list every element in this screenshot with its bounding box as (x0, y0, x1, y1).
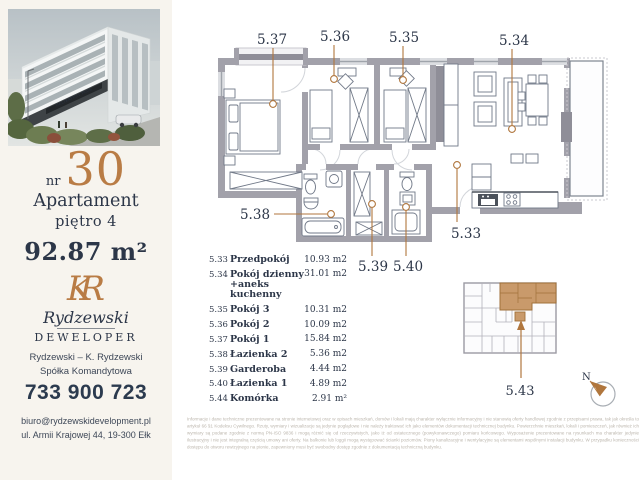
sink (304, 198, 318, 202)
label-534: 5.34 (499, 33, 529, 49)
toilet-tank (304, 174, 317, 179)
table-row: 5.36 Pokój 2 10.09 m2 (209, 320, 347, 330)
logo-subtitle: DEWELOPER (0, 331, 172, 344)
armchair (474, 72, 496, 96)
contact-block: biuro@rydzewskidevelopment.pl ul. Armii … (0, 415, 172, 442)
unit-type: Apartament (0, 193, 172, 211)
wardrobe-535 (408, 88, 426, 142)
table-row: 5.34 Pokój dzienny+aneks kuchenny 31.01 … (209, 270, 347, 301)
loggia (234, 48, 308, 65)
room-number: 5.40 (209, 379, 230, 389)
nightstand (224, 156, 235, 165)
unit-number: 30 (66, 142, 127, 196)
room-name: Łazienka 1 (230, 379, 310, 389)
kitchen (472, 154, 558, 208)
label-543: 5.43 (506, 384, 535, 399)
room-name-line: Garderoba (230, 365, 310, 375)
tall-cabinet-534 (436, 64, 458, 146)
unit-number-prefix: nr (46, 174, 61, 189)
table-row: 5.35 Pokój 3 10.31 m2 (209, 305, 347, 315)
room-name-line: Przedpokój (230, 255, 304, 265)
room-name-line: Komórka (230, 394, 312, 404)
logo-name: Rydzewski (0, 308, 172, 327)
room-name: Komórka (230, 394, 312, 404)
legal-disclaimer-text: Informacje i dane techniczne prezentowan… (187, 416, 639, 451)
room-number: 5.34 (209, 270, 230, 280)
floor-overview-plan: 5.43 (462, 282, 562, 404)
table-row: 5.37 Pokój 1 15.84 m2 (209, 335, 347, 345)
room-name: Przedpokój (230, 255, 304, 265)
room-area: 10.31 m2 (304, 305, 347, 315)
room-name: Garderoba (230, 365, 310, 375)
dining-set (518, 75, 548, 125)
room-number: 5.39 (209, 365, 230, 375)
room-number: 5.37 (209, 335, 230, 345)
label-533: 5.33 (451, 226, 481, 242)
wardrobe-536 (350, 88, 368, 142)
nightstand (224, 89, 235, 98)
table-row: 5.38 Łazienka 2 5.36 m2 (209, 350, 347, 360)
room-name-line: Pokój 1 (230, 335, 304, 345)
compass: N (578, 366, 626, 412)
room-number: 5.36 (209, 320, 230, 330)
storage-cell (515, 312, 525, 321)
room-number: 5.35 (209, 305, 230, 315)
room-name-line: Łazienka 2 (230, 350, 310, 360)
room-name: Pokój 3 (230, 305, 304, 315)
room-area: 15.84 m2 (304, 335, 347, 345)
room-name-line2: +aneks kuchenny (230, 280, 304, 301)
room-area: 4.44 m2 (310, 365, 347, 375)
armchair (474, 102, 496, 126)
room-name: Pokój dzienny+aneks kuchenny (230, 270, 304, 301)
room-area: 4.89 m2 (310, 379, 347, 389)
toilet-bowl (402, 178, 412, 191)
room-area: 10.93 m2 (304, 255, 347, 265)
single-bed-536 (310, 90, 332, 142)
unit-block: nr30 Apartament piętro 4 (0, 146, 172, 229)
building-photo: DELIKATESY PLUS (8, 9, 160, 146)
room-table: 5.33 Przedpokój 10.93 m2 5.34 Pokój dzie… (209, 255, 347, 409)
room-area: 10.09 m2 (304, 320, 347, 330)
room-number: 5.38 (209, 350, 230, 360)
email: biuro@rydzewskidevelopment.pl (0, 415, 172, 429)
double-bed (226, 100, 280, 154)
toilet-tank (400, 172, 414, 177)
bathroom-538 (302, 171, 344, 236)
washing-machine (326, 171, 342, 187)
wardrobe-537 (230, 172, 302, 189)
logo-monogram: KR (0, 272, 172, 306)
label-538: 5.38 (240, 207, 270, 223)
label-535: 5.35 (389, 30, 419, 46)
compass-north-label: N (582, 372, 591, 383)
room-area: 31.01 m2 (304, 270, 347, 280)
company-line1: Rydzewski – K. Rydzewski (0, 351, 172, 365)
building-side (108, 27, 150, 123)
table-row: 5.40 Łazienka 1 4.89 m2 (209, 379, 347, 389)
table-row: 5.44 Komórka 2.91 m² (209, 394, 347, 404)
room-name: Pokój 1 (230, 335, 304, 345)
unit-area: 92.87 m² (0, 237, 172, 266)
label-540: 5.40 (393, 259, 423, 275)
room-name-line: Pokój 3 (230, 305, 304, 315)
room-area: 2.91 m² (312, 394, 347, 404)
room-name: Łazienka 2 (230, 350, 310, 360)
sink-bowl (304, 202, 318, 209)
company-name: Rydzewski – K. Rydzewski Spółka Komandyt… (0, 351, 172, 379)
unit-floor: piętro 4 (0, 215, 172, 230)
stool (511, 154, 523, 163)
label-539: 5.39 (358, 259, 388, 275)
single-bed-535 (384, 90, 406, 142)
room-number: 5.44 (209, 394, 230, 404)
developer-logo: KR Rydzewski DEWELOPER (0, 272, 172, 344)
room-name: Pokój 2 (230, 320, 304, 330)
label-536: 5.36 (320, 29, 350, 45)
toilet-bowl (306, 180, 316, 194)
address: ul. Armii Krajowej 44, 19-300 Ełk (0, 429, 172, 443)
table-row: 5.33 Przedpokój 10.93 m2 (209, 255, 347, 265)
garderoba-539 (354, 172, 382, 235)
sofa (504, 78, 522, 126)
room-name-line: Pokój 2 (230, 320, 304, 330)
company-line2: Spółka Komandytowa (0, 365, 172, 379)
legal-disclaimer: Informacje i dane techniczne prezentowan… (187, 416, 639, 456)
room-area: 5.36 m2 (310, 350, 347, 360)
room-number: 5.33 (209, 255, 230, 265)
logo-divider (57, 328, 115, 329)
sink (400, 192, 415, 205)
table-row: 5.39 Garderoba 4.44 m2 (209, 365, 347, 375)
stool (526, 154, 538, 163)
label-537: 5.37 (257, 32, 287, 48)
phone-number: 733 900 723 (0, 381, 172, 405)
sidebar: DELIKATESY PLUS (0, 0, 172, 480)
room-name-line: Łazienka 1 (230, 379, 310, 389)
